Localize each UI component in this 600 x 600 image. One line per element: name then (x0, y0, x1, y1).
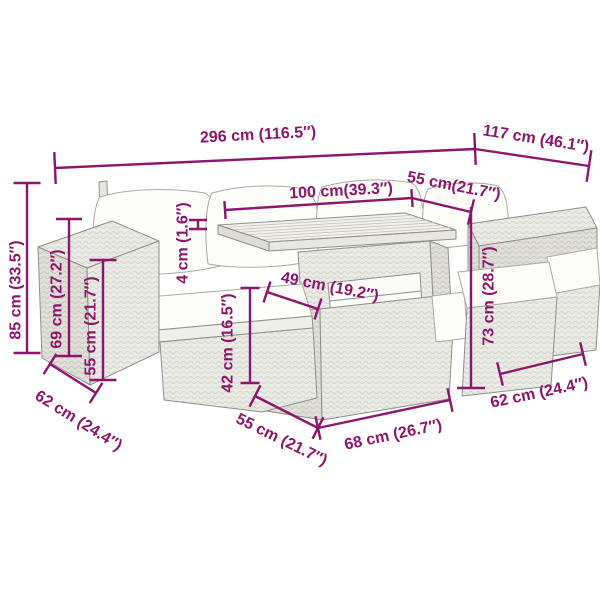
dim-55-left-label: 55 cm (21.7″) (83, 276, 100, 375)
diagram-page: 296 cm (116.5″)117 cm (46.1″)100 cm(39.3… (0, 0, 600, 600)
seat-cushion-right (432, 292, 468, 342)
dim-100-line (224, 201, 225, 219)
dim-73-label: 73 cm (28.7″) (481, 246, 498, 345)
dim-296-line (54, 152, 55, 184)
dim-4-label: 4 cm (1.6″) (175, 202, 192, 283)
diagram-svg: 296 cm (116.5″)117 cm (46.1″)100 cm(39.3… (0, 0, 600, 600)
dim-42-label: 42 cm (16.5″) (220, 293, 237, 392)
dim-85-label: 85 cm (33.5″) (8, 240, 25, 339)
stool-front (458, 262, 557, 396)
dim-69-label: 69 cm (27.2″) (49, 249, 66, 348)
